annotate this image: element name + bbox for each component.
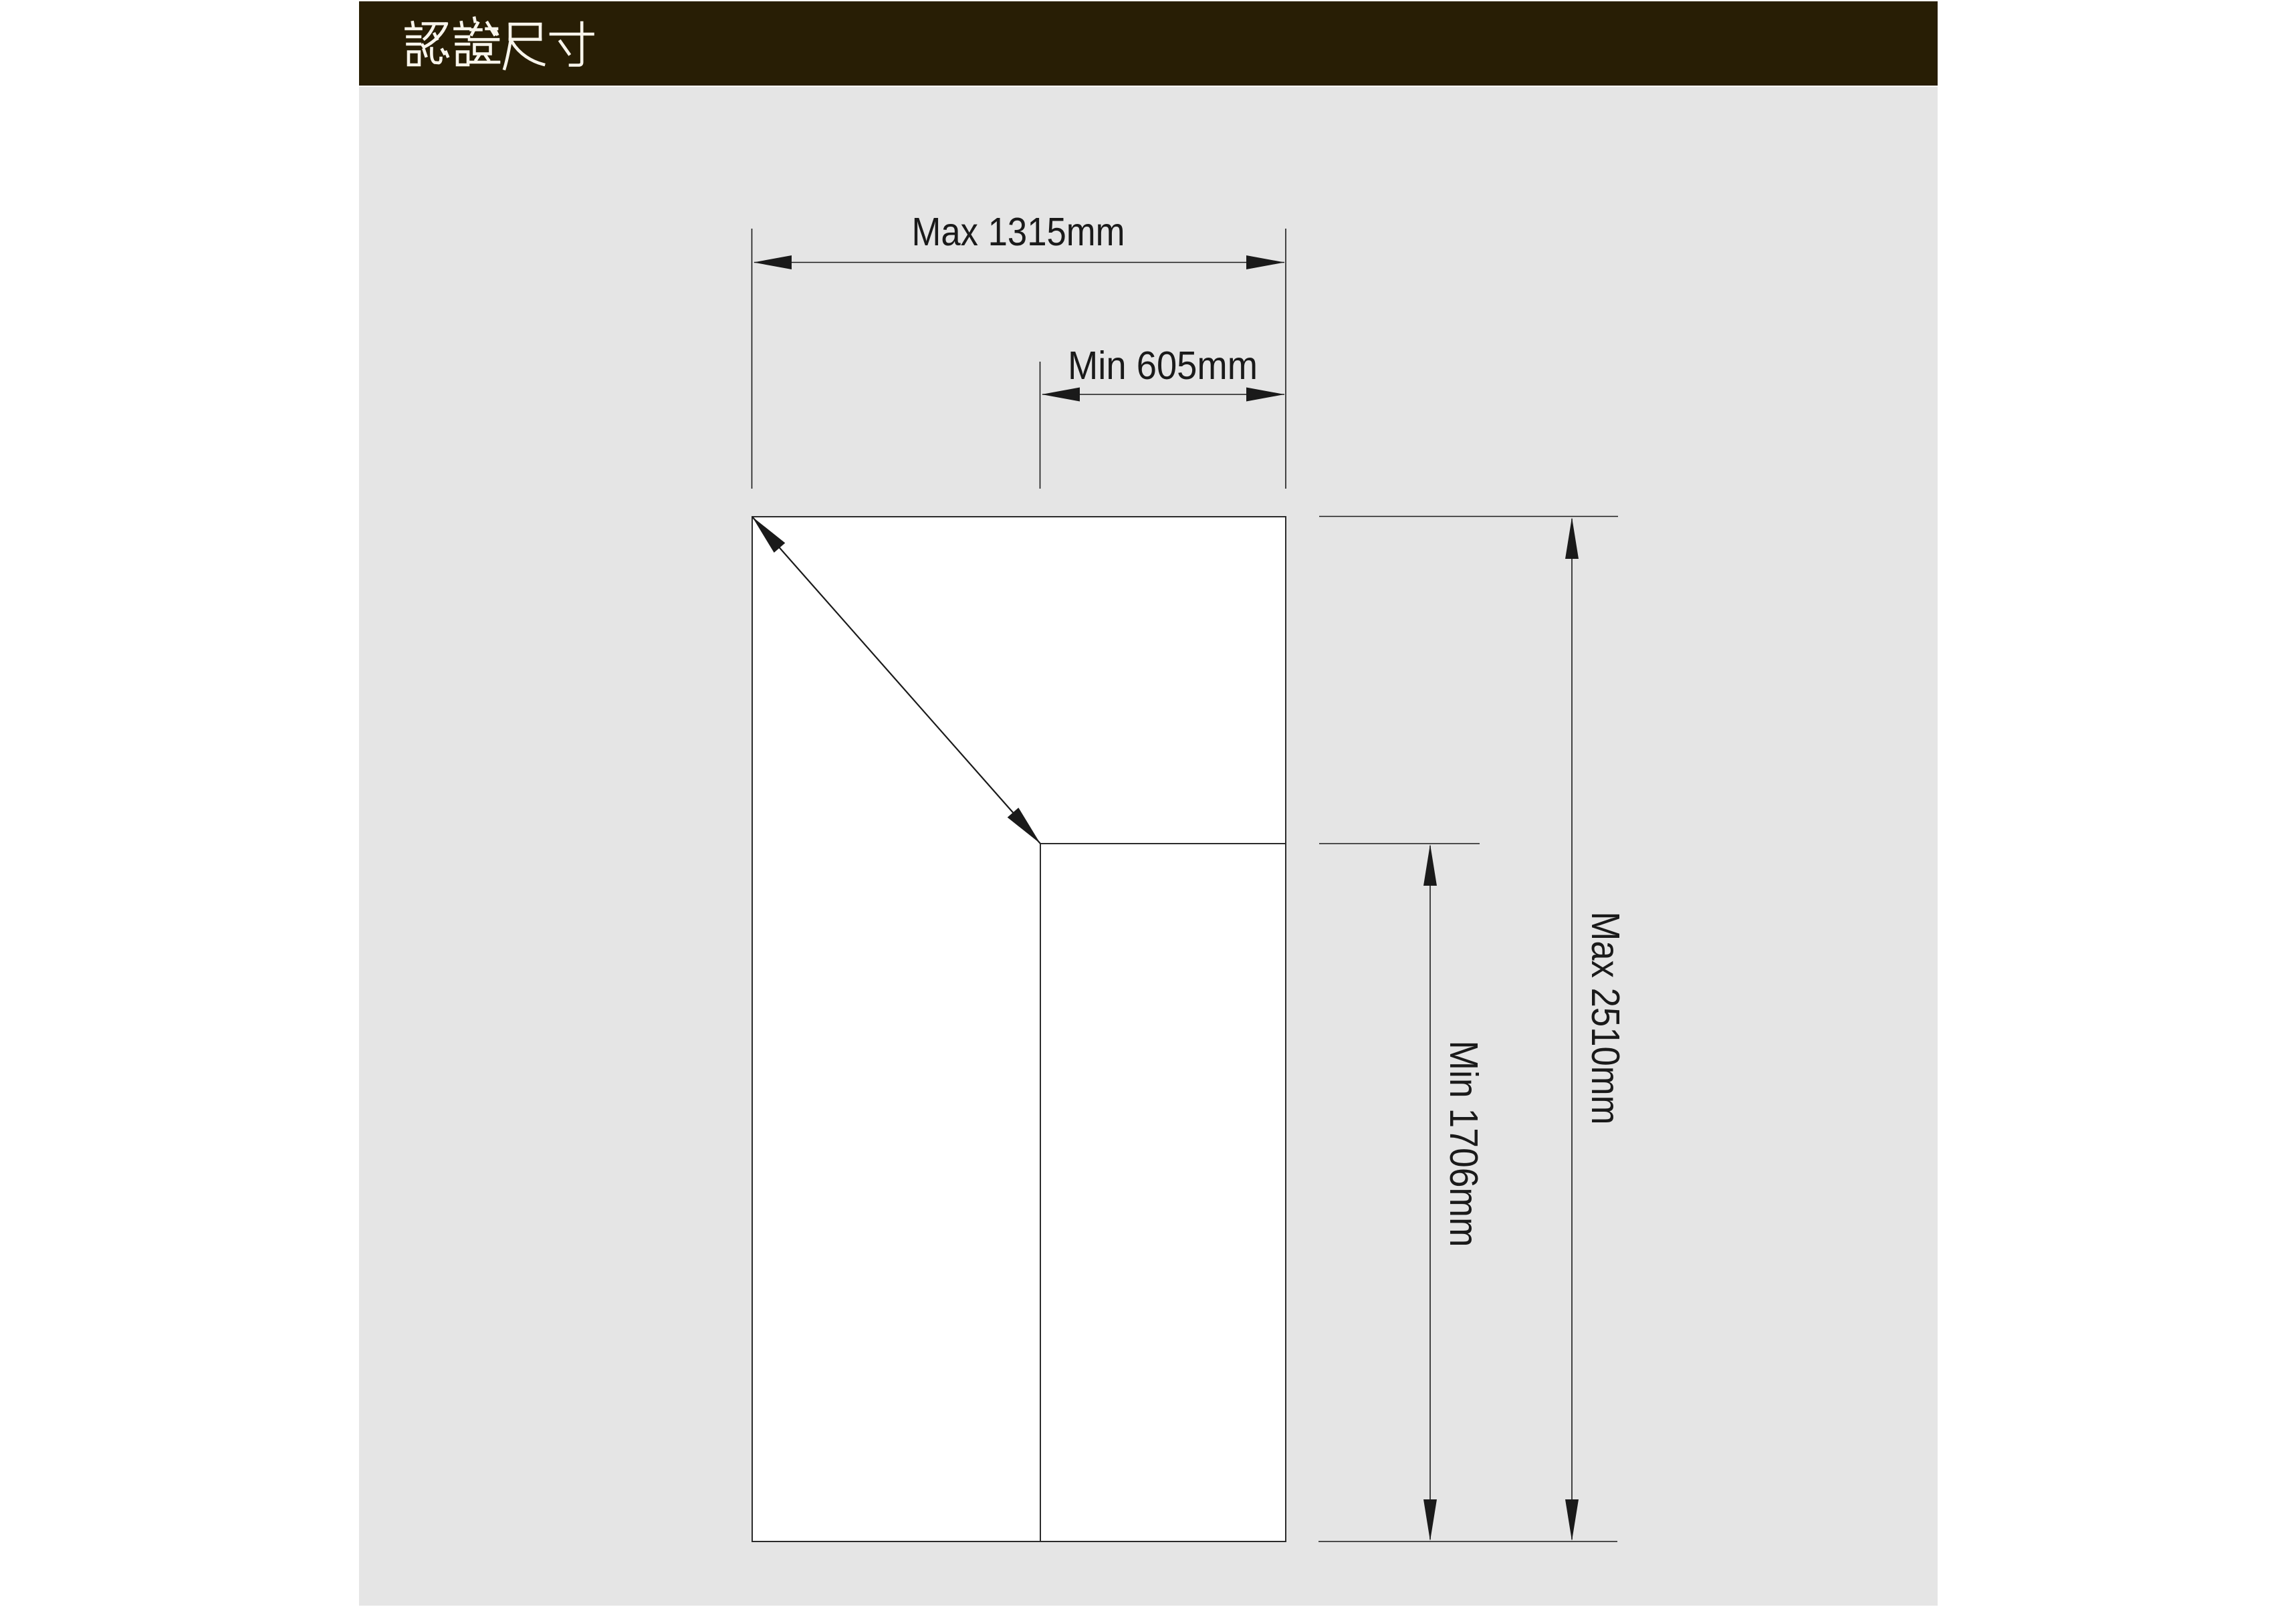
svg-text:Max 2510mm: Max 2510mm bbox=[1583, 912, 1627, 1125]
svg-text:Min 1706mm: Min 1706mm bbox=[1442, 1041, 1486, 1247]
svg-text:Min 605mm: Min 605mm bbox=[1068, 344, 1258, 388]
svg-text:Max 1315mm: Max 1315mm bbox=[912, 210, 1125, 254]
